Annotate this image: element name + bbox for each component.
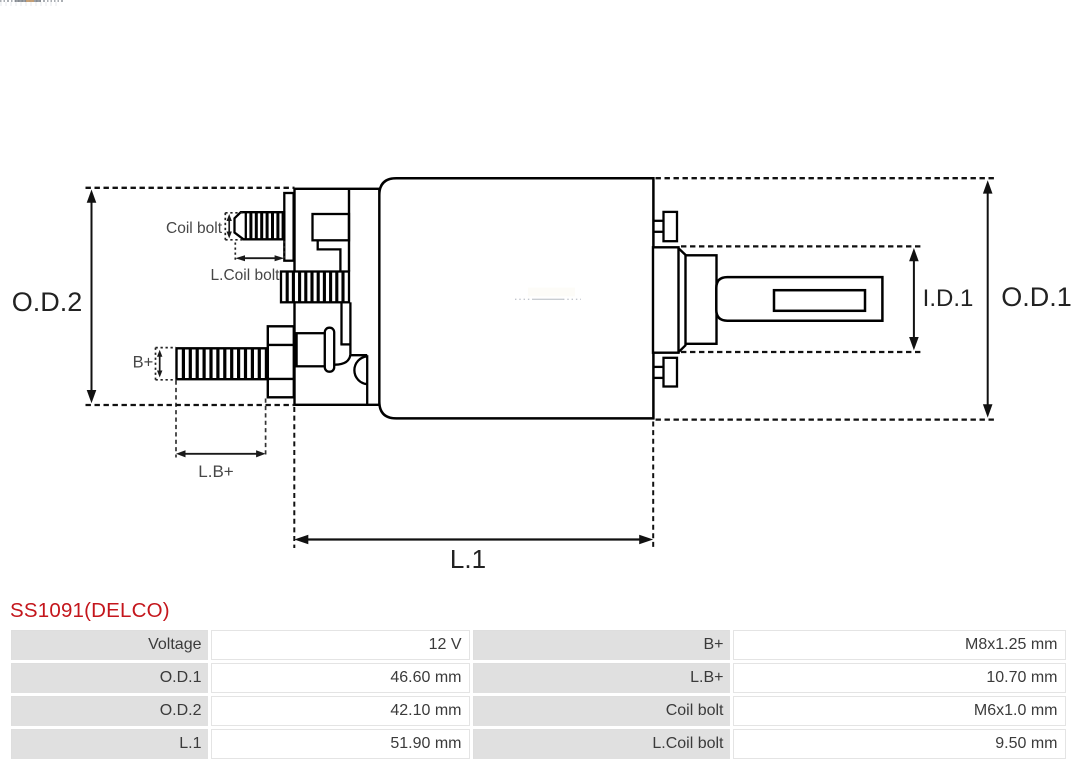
svg-text:L.Coil bolt: L.Coil bolt xyxy=(211,267,281,284)
svg-text:O.D.2: O.D.2 xyxy=(12,287,83,317)
svg-text:I.D.1: I.D.1 xyxy=(923,285,974,312)
svg-text:O.D.1: O.D.1 xyxy=(1001,282,1072,312)
svg-text:Coil bolt: Coil bolt xyxy=(166,220,223,237)
svg-text:L.1: L.1 xyxy=(450,544,486,574)
svg-text:L.B+: L.B+ xyxy=(198,462,234,481)
svg-text:B+: B+ xyxy=(133,354,154,372)
